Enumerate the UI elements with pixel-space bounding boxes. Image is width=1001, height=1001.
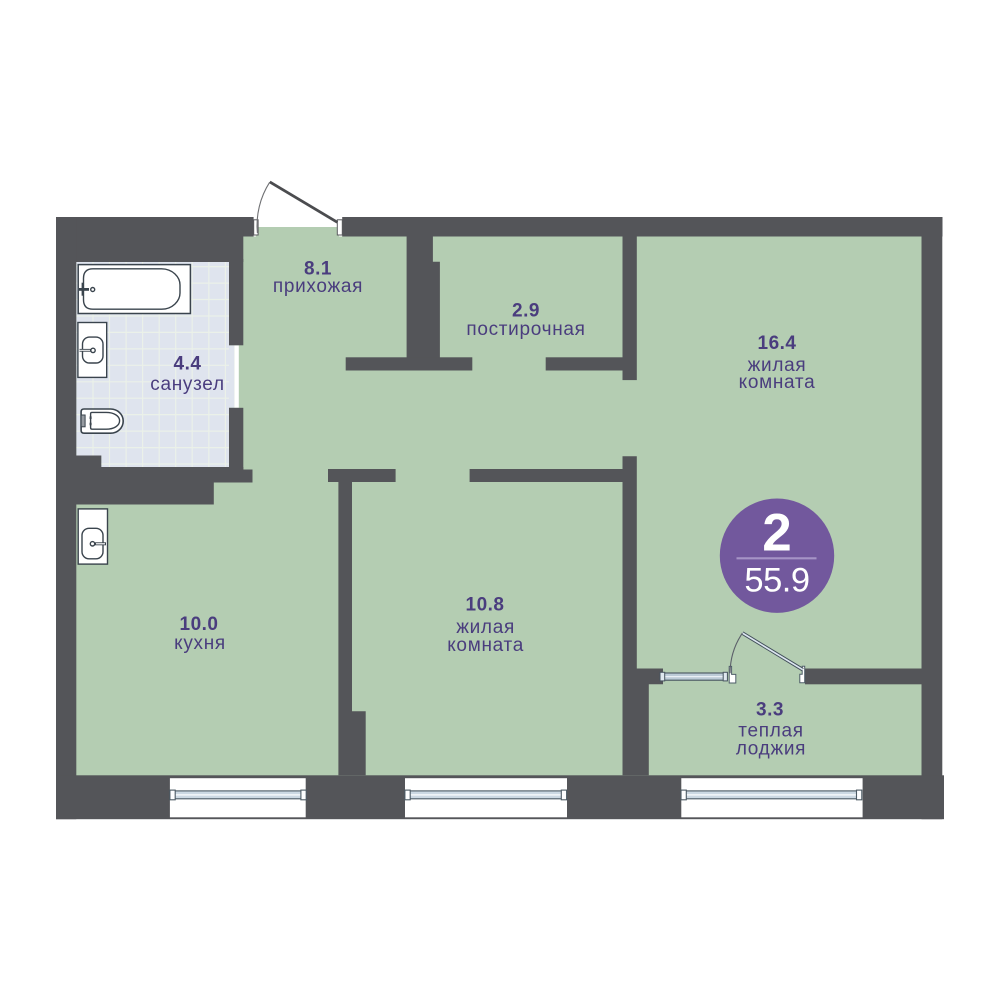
svg-text:кухня: кухня	[174, 633, 226, 654]
svg-text:16.4: 16.4	[758, 333, 797, 354]
svg-text:постирочная: постирочная	[466, 319, 585, 340]
svg-text:4.4: 4.4	[174, 354, 202, 375]
svg-text:3.3: 3.3	[756, 700, 784, 721]
svg-text:10.8: 10.8	[466, 595, 505, 616]
svg-text:комната: комната	[739, 372, 816, 393]
svg-text:санузел: санузел	[150, 374, 224, 395]
svg-text:55.9: 55.9	[744, 562, 809, 600]
svg-text:прихожая: прихожая	[273, 276, 363, 297]
svg-text:лоджия: лоджия	[736, 739, 806, 760]
svg-text:2: 2	[762, 504, 791, 563]
svg-text:комната: комната	[447, 635, 524, 656]
